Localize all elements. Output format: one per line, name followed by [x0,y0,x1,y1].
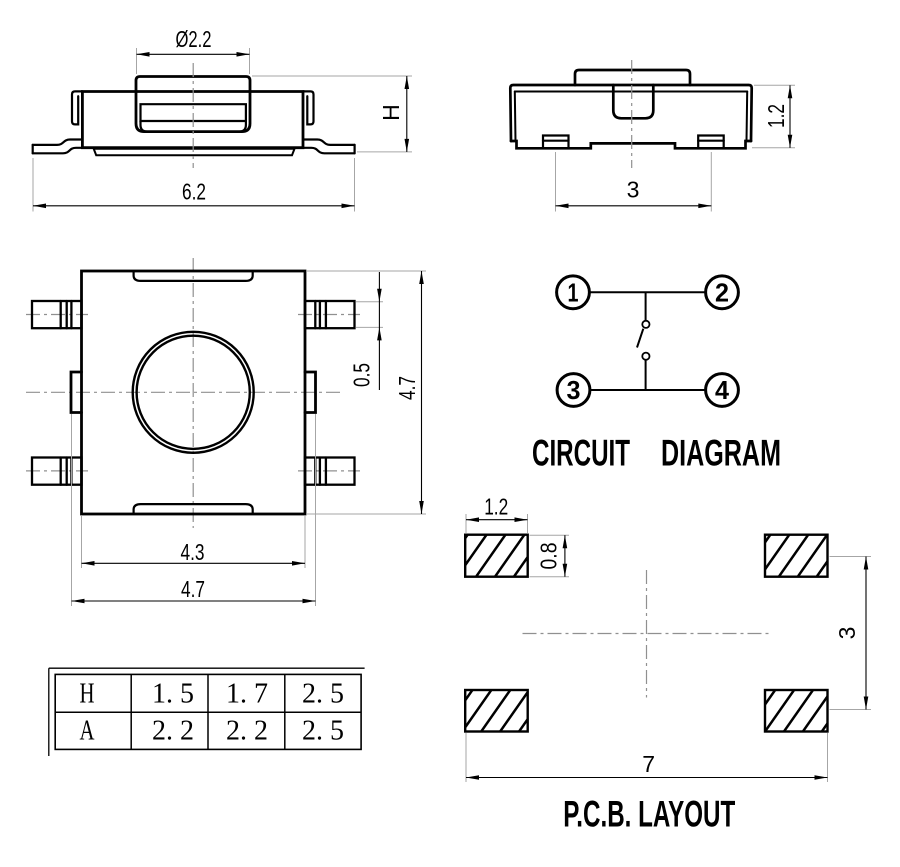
svg-text:2. 5: 2. 5 [302,678,344,710]
svg-text:2. 2: 2. 2 [152,715,194,747]
svg-text:H: H [378,104,404,121]
svg-text:4.7: 4.7 [394,376,420,400]
svg-text:4.3: 4.3 [181,539,205,565]
svg-text:4.7: 4.7 [181,576,205,602]
svg-text:6.2: 6.2 [182,179,206,205]
svg-text:1. 7: 1. 7 [226,678,268,710]
svg-text:1.2: 1.2 [484,494,508,520]
svg-text:0.5: 0.5 [349,363,375,387]
svg-text:1. 5: 1. 5 [152,678,194,710]
svg-text:3: 3 [627,177,640,203]
svg-text:CIRCUIT: CIRCUIT [532,433,630,474]
svg-text:A: A [80,715,95,747]
svg-text:3: 3 [834,627,860,640]
svg-text:0.8: 0.8 [536,543,562,570]
svg-text:DIAGRAM: DIAGRAM [661,433,781,474]
svg-text:1: 1 [568,278,579,308]
svg-text:H: H [80,678,95,710]
svg-text:1.2: 1.2 [763,104,789,128]
svg-text:4: 4 [715,375,730,405]
svg-text:Ø2.2: Ø2.2 [176,26,212,52]
svg-text:7: 7 [642,751,655,777]
svg-text:2. 5: 2. 5 [302,715,344,747]
svg-text:2. 2: 2. 2 [226,715,268,747]
svg-text:P.C.B. LAYOUT: P.C.B. LAYOUT [563,794,735,835]
svg-text:2: 2 [715,278,729,308]
svg-text:3: 3 [567,375,581,405]
